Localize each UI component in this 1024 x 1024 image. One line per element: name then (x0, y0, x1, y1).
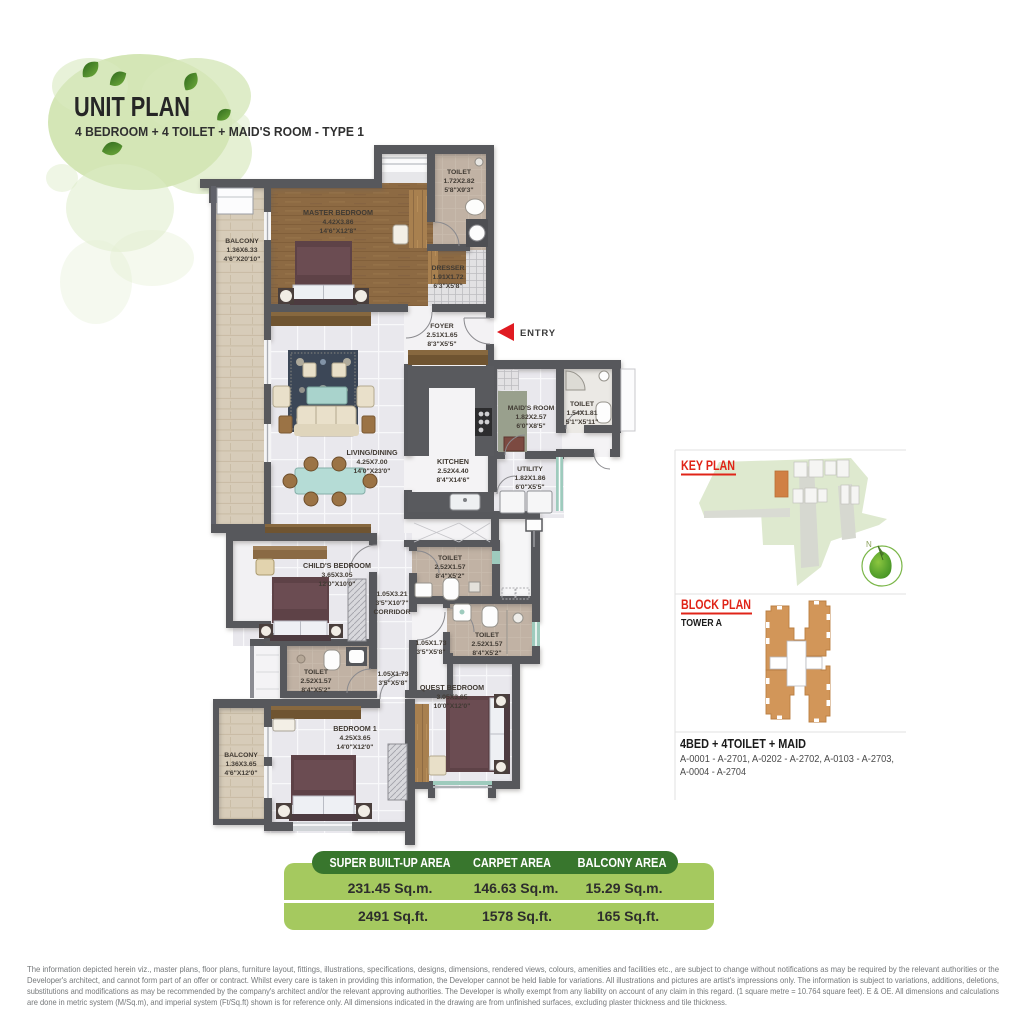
svg-text:CHILD'S BEDROOM: CHILD'S BEDROOM (303, 561, 371, 570)
svg-text:14'0"X12'0": 14'0"X12'0" (337, 744, 374, 751)
svg-text:CARPET AREA: CARPET AREA (473, 855, 552, 870)
svg-text:8'4"X5'2": 8'4"X5'2" (472, 650, 501, 657)
svg-text:KEY PLAN: KEY PLAN (681, 458, 735, 473)
svg-text:2491 Sq.ft.: 2491 Sq.ft. (358, 908, 428, 924)
svg-text:BALCONY AREA: BALCONY AREA (578, 855, 668, 870)
svg-text:CORRIDOR: CORRIDOR (373, 609, 410, 616)
svg-text:4.25X7.00: 4.25X7.00 (357, 459, 388, 466)
svg-text:TOILET: TOILET (438, 555, 463, 562)
svg-text:A-0001 - A-2701, A-0202 - A-27: A-0001 - A-2701, A-0202 - A-2702, A-0103… (680, 754, 894, 765)
svg-text:TOWER A: TOWER A (681, 617, 722, 629)
svg-text:5'8"X9'3": 5'8"X9'3" (444, 187, 473, 194)
svg-text:2.52X1.57: 2.52X1.57 (301, 678, 332, 685)
svg-text:MASTER BEDROOM: MASTER BEDROOM (303, 208, 373, 217)
svg-text:A-0004 - A-2704: A-0004 - A-2704 (680, 767, 746, 778)
svg-text:ENTRY: ENTRY (520, 328, 556, 339)
svg-text:Developer's architect, and can: Developer's architect, and cannot form p… (27, 975, 999, 985)
svg-text:TOILET: TOILET (447, 169, 472, 176)
svg-text:1.82X2.57: 1.82X2.57 (516, 414, 547, 421)
svg-text:1.05X3.21: 1.05X3.21 (377, 591, 408, 598)
svg-text:10'0"X12'0": 10'0"X12'0" (434, 703, 471, 710)
svg-text:1.91X1.72: 1.91X1.72 (433, 274, 464, 281)
svg-text:SUPER BUILT-UP AREA: SUPER BUILT-UP AREA (330, 855, 452, 870)
svg-text:KITCHEN: KITCHEN (437, 457, 469, 466)
svg-text:3'5"X5'8": 3'5"X5'8" (378, 680, 407, 687)
svg-text:4.25X3.65: 4.25X3.65 (340, 735, 371, 742)
svg-text:6'3"X5'8": 6'3"X5'8" (433, 283, 462, 290)
svg-text:1.54X1.81: 1.54X1.81 (567, 410, 598, 417)
svg-text:5'1"X5'11": 5'1"X5'11" (566, 419, 599, 426)
svg-text:8'4"X14'6": 8'4"X14'6" (436, 477, 469, 484)
svg-text:BEDROOM 1: BEDROOM 1 (333, 724, 377, 733)
svg-text:165 Sq.ft.: 165 Sq.ft. (597, 908, 659, 924)
svg-text:BLOCK PLAN: BLOCK PLAN (681, 597, 751, 612)
svg-text:15.29 Sq.m.: 15.29 Sq.m. (585, 880, 662, 896)
svg-text:1.36X6.33: 1.36X6.33 (227, 247, 258, 254)
svg-text:8'3"X5'5": 8'3"X5'5" (427, 341, 456, 348)
svg-text:TOILET: TOILET (304, 669, 329, 676)
svg-text:1.72X2.82: 1.72X2.82 (444, 178, 475, 185)
svg-text:The information depicted herei: The information depicted herein viz., ma… (27, 964, 999, 974)
svg-text:LIVING/DINING: LIVING/DINING (346, 448, 398, 457)
svg-text:2.52X1.57: 2.52X1.57 (435, 564, 466, 571)
svg-text:2.52X1.57: 2.52X1.57 (472, 641, 503, 648)
svg-text:1.05X1.73: 1.05X1.73 (416, 640, 447, 647)
svg-text:8'4"X5'2": 8'4"X5'2" (435, 573, 464, 580)
svg-text:N: N (866, 540, 872, 549)
svg-text:146.63 Sq.m.: 146.63 Sq.m. (474, 880, 559, 896)
svg-text:14'0"X23'0": 14'0"X23'0" (354, 468, 391, 475)
svg-text:6'0"X5'5": 6'0"X5'5" (515, 484, 544, 491)
svg-text:UNIT PLAN: UNIT PLAN (74, 91, 190, 122)
svg-text:3.05X3.65: 3.05X3.65 (437, 694, 468, 701)
svg-text:2.52X4.40: 2.52X4.40 (438, 468, 469, 475)
svg-text:2.51X1.65: 2.51X1.65 (427, 332, 458, 339)
svg-text:3.65X3.05: 3.65X3.05 (322, 572, 353, 579)
svg-text:12'0"X10'0": 12'0"X10'0" (319, 581, 356, 588)
svg-text:4 BEDROOM + 4 TOILET + MAID'S: 4 BEDROOM + 4 TOILET + MAID'S ROOM - TYP… (75, 124, 364, 139)
svg-text:231.45 Sq.m.: 231.45 Sq.m. (348, 880, 433, 896)
svg-text:QUEST BEDROOM: QUEST BEDROOM (420, 683, 484, 692)
svg-text:4BED + 4TOILET + MAID: 4BED + 4TOILET + MAID (680, 737, 806, 751)
svg-text:14'6"X12'8": 14'6"X12'8" (320, 228, 357, 235)
svg-text:UTILITY: UTILITY (517, 466, 543, 473)
svg-text:MAID'S ROOM: MAID'S ROOM (508, 405, 555, 412)
svg-text:substitutions and modification: substitutions and modifications as may b… (27, 986, 999, 996)
svg-text:8'4"X5'2": 8'4"X5'2" (301, 687, 330, 694)
svg-text:1.36X3.65: 1.36X3.65 (226, 761, 257, 768)
svg-text:3'5"X5'8": 3'5"X5'8" (416, 649, 445, 656)
svg-text:DRESSER: DRESSER (432, 265, 465, 272)
svg-text:4.42X3.86: 4.42X3.86 (323, 219, 354, 226)
svg-text:BALCONY: BALCONY (225, 238, 259, 245)
svg-text:FOYER: FOYER (430, 323, 454, 330)
svg-text:are done in metric system (M/S: are done in metric system (M/Sq.m), and … (27, 997, 727, 1007)
svg-text:4'6"X12'0": 4'6"X12'0" (224, 770, 257, 777)
svg-text:TOILET: TOILET (570, 401, 595, 408)
svg-text:6'0"X8'5": 6'0"X8'5" (516, 423, 545, 430)
svg-text:BALCONY: BALCONY (224, 752, 258, 759)
svg-text:TOILET: TOILET (475, 632, 500, 639)
svg-text:1578 Sq.ft.: 1578 Sq.ft. (482, 908, 552, 924)
svg-text:1.05X1.73: 1.05X1.73 (378, 671, 409, 678)
svg-text:1.82X1.86: 1.82X1.86 (515, 475, 546, 482)
svg-text:4'6"X20'10": 4'6"X20'10" (224, 256, 261, 263)
svg-text:3'5"X10'7": 3'5"X10'7" (375, 600, 408, 607)
